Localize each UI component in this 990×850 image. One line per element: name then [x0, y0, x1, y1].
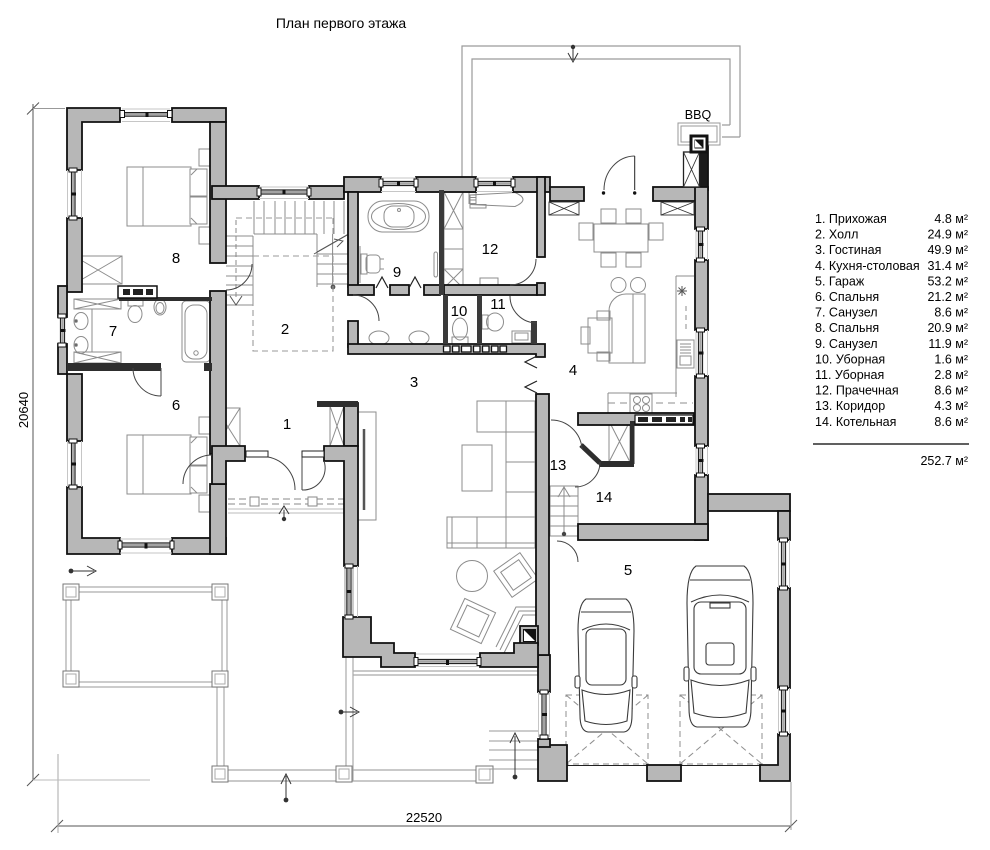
- svg-text:5: 5: [624, 562, 632, 579]
- svg-text:10: 10: [451, 303, 468, 320]
- svg-text:8.6 м²: 8.6 м²: [934, 415, 968, 429]
- svg-text:31.4 м²: 31.4 м²: [927, 259, 968, 273]
- svg-text:11.9 м²: 11.9 м²: [928, 337, 968, 351]
- svg-text:8.6 м²: 8.6 м²: [934, 384, 968, 398]
- svg-text:12: 12: [482, 241, 499, 258]
- svg-text:252.7 м²: 252.7 м²: [920, 454, 968, 468]
- svg-text:3: 3: [410, 374, 418, 391]
- svg-text:4: 4: [569, 362, 577, 379]
- svg-text:2.8 м²: 2.8 м²: [934, 368, 968, 382]
- svg-text:9: 9: [393, 264, 401, 281]
- svg-text:20640: 20640: [16, 392, 31, 428]
- svg-text:1. Прихожая: 1. Прихожая: [815, 212, 887, 226]
- svg-text:7. Санузел: 7. Санузел: [815, 306, 878, 320]
- svg-text:11: 11: [490, 296, 506, 313]
- svg-text:4.3 м²: 4.3 м²: [934, 399, 968, 413]
- svg-text:1: 1: [283, 416, 291, 433]
- svg-text:49.9 м²: 49.9 м²: [927, 243, 968, 257]
- svg-text:14. Котельная: 14. Котельная: [815, 415, 896, 429]
- svg-text:2: 2: [281, 321, 289, 338]
- svg-text:4. Кухня-столовая: 4. Кухня-столовая: [815, 259, 920, 273]
- svg-text:14: 14: [596, 489, 613, 506]
- svg-text:20.9 м²: 20.9 м²: [927, 321, 968, 335]
- svg-text:BBQ: BBQ: [685, 108, 712, 122]
- svg-text:22520: 22520: [406, 810, 442, 825]
- svg-text:8: 8: [172, 250, 180, 267]
- svg-text:53.2 м²: 53.2 м²: [927, 274, 968, 288]
- svg-text:10. Уборная: 10. Уборная: [815, 352, 885, 366]
- svg-text:4.8 м²: 4.8 м²: [934, 212, 968, 226]
- svg-text:6. Спальня: 6. Спальня: [815, 290, 879, 304]
- svg-text:7: 7: [109, 323, 117, 340]
- svg-text:13: 13: [550, 457, 567, 474]
- svg-text:8.6 м²: 8.6 м²: [934, 306, 968, 320]
- svg-text:1.6 м²: 1.6 м²: [934, 352, 968, 366]
- svg-text:9. Санузел: 9. Санузел: [815, 337, 878, 351]
- svg-text:5. Гараж: 5. Гараж: [815, 274, 865, 288]
- svg-text:2. Холл: 2. Холл: [815, 228, 858, 242]
- svg-text:13. Коридор: 13. Коридор: [815, 399, 885, 413]
- svg-text:План первого этажа: План первого этажа: [276, 15, 407, 31]
- svg-text:11. Уборная: 11. Уборная: [815, 368, 884, 382]
- svg-text:21.2 м²: 21.2 м²: [927, 290, 968, 304]
- svg-text:3. Гостиная: 3. Гостиная: [815, 243, 881, 257]
- svg-text:24.9 м²: 24.9 м²: [927, 228, 968, 242]
- svg-text:6: 6: [172, 397, 180, 414]
- svg-text:12. Прачечная: 12. Прачечная: [815, 384, 899, 398]
- svg-text:8. Спальня: 8. Спальня: [815, 321, 879, 335]
